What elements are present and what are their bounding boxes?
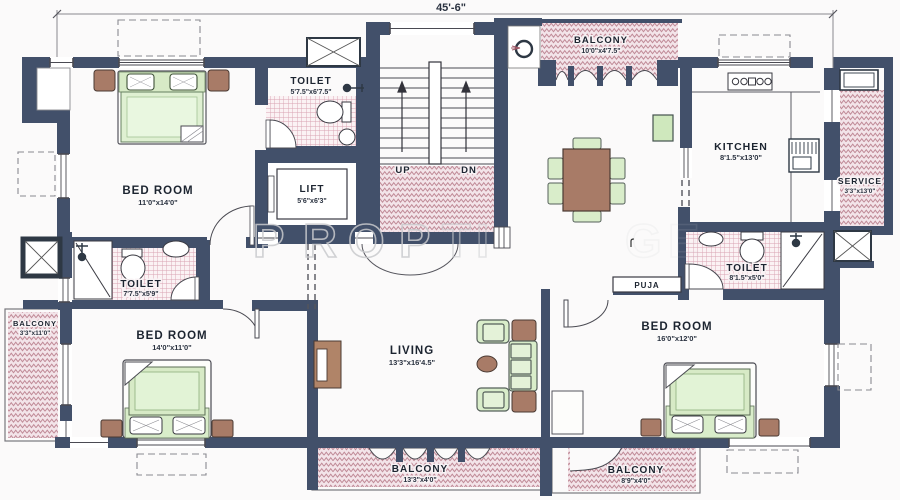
- svg-text:10'0"x4'7.5": 10'0"x4'7.5": [581, 48, 620, 55]
- svg-text:O: O: [348, 214, 385, 267]
- svg-text:BALCONY: BALCONY: [13, 319, 57, 328]
- svg-text:BALCONY: BALCONY: [574, 35, 628, 46]
- svg-text:I: I: [476, 214, 489, 267]
- svg-text:7'7.5"x5'9": 7'7.5"x5'9": [123, 291, 158, 298]
- svg-text:14'0"x11'0": 14'0"x11'0": [152, 343, 192, 352]
- svg-text:DN: DN: [461, 165, 477, 176]
- svg-text:BALCONY: BALCONY: [608, 465, 664, 476]
- svg-text:BED ROOM: BED ROOM: [122, 185, 193, 197]
- svg-text:P: P: [399, 214, 430, 267]
- svg-text:SERVICE: SERVICE: [838, 176, 882, 186]
- svg-text:TOILET: TOILET: [290, 76, 331, 87]
- svg-text:T: T: [442, 214, 471, 267]
- svg-text:LIVING: LIVING: [390, 345, 434, 357]
- svg-text:45'-6": 45'-6": [436, 2, 466, 14]
- svg-text:BED ROOM: BED ROOM: [641, 321, 712, 333]
- svg-text:PUJA: PUJA: [634, 281, 659, 290]
- svg-text:E: E: [668, 214, 699, 267]
- svg-text:3'3"x13'0": 3'3"x13'0": [845, 188, 876, 195]
- svg-text:8'9"x4'0": 8'9"x4'0": [621, 478, 650, 485]
- svg-text:BED ROOM: BED ROOM: [136, 330, 207, 342]
- svg-text:G: G: [625, 214, 662, 267]
- svg-text:P: P: [253, 214, 284, 267]
- svg-text:LIFT: LIFT: [299, 184, 324, 195]
- svg-text:8'1.5"x13'0": 8'1.5"x13'0": [720, 153, 762, 162]
- svg-text:13'3"x16'4.5": 13'3"x16'4.5": [389, 358, 436, 367]
- svg-text:KITCHEN: KITCHEN: [714, 141, 768, 153]
- svg-text:13'3"x4'0": 13'3"x4'0": [403, 477, 436, 484]
- svg-text:5'6"x6'3": 5'6"x6'3": [297, 198, 326, 205]
- svg-text:16'0"x12'0": 16'0"x12'0": [657, 334, 697, 343]
- svg-text:BALCONY: BALCONY: [392, 464, 448, 475]
- svg-text:TOILET: TOILET: [120, 279, 161, 290]
- svg-text:8'1.5"x5'0": 8'1.5"x5'0": [729, 275, 764, 282]
- svg-text:TOILET: TOILET: [726, 263, 767, 274]
- svg-text:5'7.5"x6'7.5": 5'7.5"x6'7.5": [290, 89, 331, 96]
- svg-text:3'3"x11'0": 3'3"x11'0": [20, 330, 51, 337]
- svg-text:UP: UP: [395, 165, 410, 176]
- svg-text:R: R: [303, 214, 337, 267]
- svg-text:11'0"x14'0": 11'0"x14'0": [138, 198, 178, 207]
